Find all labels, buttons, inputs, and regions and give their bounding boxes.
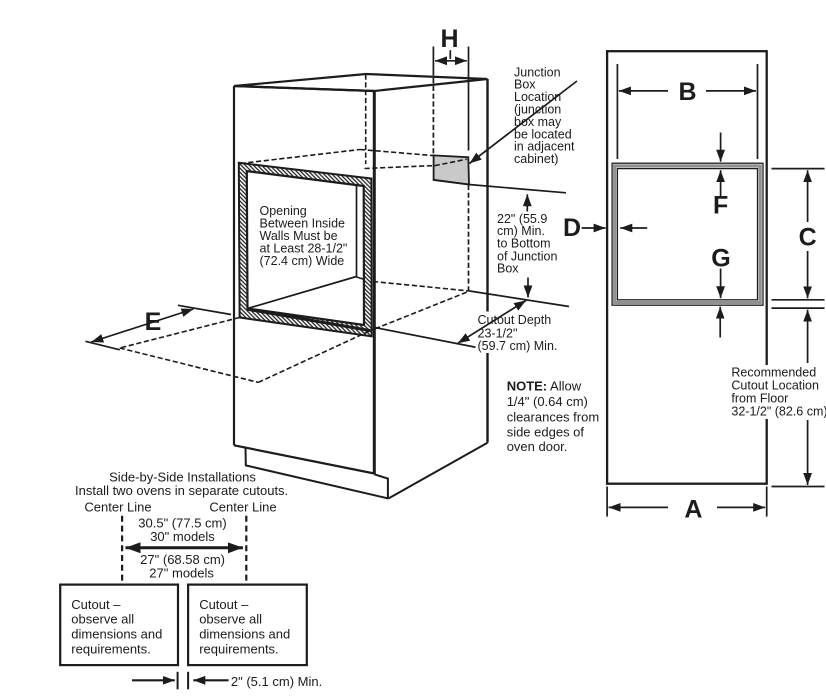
svg-text:Cutout –: Cutout – bbox=[199, 597, 249, 612]
svg-text:dimensions and: dimensions and bbox=[199, 627, 290, 642]
svg-text:side edges of: side edges of bbox=[507, 425, 585, 440]
svg-text:27" models: 27" models bbox=[149, 566, 214, 581]
svg-text:A: A bbox=[684, 496, 702, 524]
svg-text:G: G bbox=[711, 245, 730, 273]
svg-text:Cutout Depth: Cutout Depth bbox=[478, 313, 552, 327]
svg-text:30" models: 30" models bbox=[150, 529, 215, 544]
svg-text:dimensions and: dimensions and bbox=[71, 627, 162, 642]
svg-text:observe all: observe all bbox=[71, 612, 134, 627]
svg-text:D: D bbox=[563, 214, 581, 242]
svg-text:observe all: observe all bbox=[199, 612, 262, 627]
svg-text:B: B bbox=[678, 78, 696, 106]
svg-text:Box: Box bbox=[497, 262, 519, 276]
svg-text:(72.4 cm) Wide: (72.4 cm) Wide bbox=[260, 254, 345, 268]
svg-text:E: E bbox=[145, 308, 162, 336]
svg-text:Center Line: Center Line bbox=[209, 500, 276, 515]
svg-text:F: F bbox=[713, 192, 728, 220]
svg-text:C: C bbox=[799, 224, 817, 252]
svg-text:Cutout Location: Cutout Location bbox=[731, 379, 819, 393]
svg-text:cabinet): cabinet) bbox=[514, 152, 558, 166]
svg-text:Center Line: Center Line bbox=[84, 500, 151, 515]
svg-text:Install two ovens in separate: Install two ovens in separate cutouts. bbox=[75, 483, 288, 498]
svg-text:Recommended: Recommended bbox=[731, 366, 816, 380]
svg-text:NOTE: Allow: NOTE: Allow bbox=[507, 379, 582, 394]
svg-text:requirements.: requirements. bbox=[71, 641, 150, 656]
svg-text:H: H bbox=[440, 25, 458, 53]
svg-text:requirements.: requirements. bbox=[199, 641, 278, 656]
svg-text:from Floor: from Floor bbox=[731, 392, 788, 406]
svg-text:2" (5.1 cm) Min.: 2" (5.1 cm) Min. bbox=[231, 674, 322, 689]
svg-text:32-1/2" (82.6 cm): 32-1/2" (82.6 cm) bbox=[731, 405, 826, 419]
svg-text:(59.7 cm) Min.: (59.7 cm) Min. bbox=[478, 339, 558, 353]
svg-text:oven door.: oven door. bbox=[507, 439, 568, 454]
svg-text:clearances from: clearances from bbox=[507, 409, 599, 424]
svg-text:Cutout –: Cutout – bbox=[71, 597, 121, 612]
svg-text:1/4" (0.64 cm): 1/4" (0.64 cm) bbox=[507, 394, 588, 409]
